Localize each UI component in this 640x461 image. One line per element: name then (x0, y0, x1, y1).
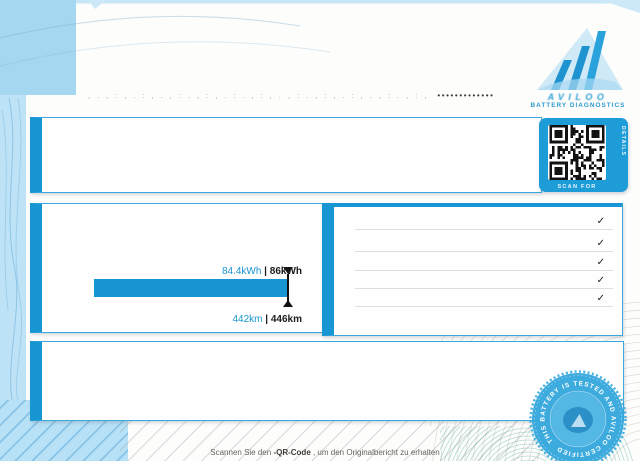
checklist-row: ✓ (355, 306, 613, 307)
qr-scan-for-label: SCAN FOR (539, 184, 615, 190)
checkmark-icon: ✓ (597, 257, 605, 268)
capacity-labels: 84.4kWh | 86kWh (42, 255, 302, 288)
checklist-row: ✓ (355, 288, 613, 289)
aviloo-logo: AVILOO BATTERY DIAGNOSTICS (527, 16, 629, 109)
qr-code-pattern (548, 125, 606, 180)
certificate-page: , . , : , . : , . , : . , : , . : . , : … (0, 0, 640, 461)
checkmark-icon: ✓ (597, 216, 605, 227)
range-labels: 442km | 446km (42, 303, 302, 336)
masked-dots: ••••••••••••• (437, 91, 494, 100)
capacity-measured: 84.4kWh (222, 266, 261, 277)
capacity-chart-box: 84.4kWh | 86kWh 442km | 446km (30, 203, 329, 333)
footer-scan-instruction: Scannen Sie den -QR-Code , um den Origin… (140, 448, 510, 457)
range-separator: | (263, 314, 271, 325)
checklist-row: ✓ (355, 251, 613, 252)
range-original: 446km (271, 314, 302, 325)
checkmark-icon: ✓ (597, 275, 605, 286)
footer-prefix: Scannen Sie den (210, 448, 273, 457)
checklist-row: ✓ (355, 270, 613, 271)
checklist-box: ✓ ✓ ✓ ✓ ✓ (322, 203, 623, 336)
qr-code (548, 125, 606, 180)
qr-details-label: DETAILS (620, 126, 626, 156)
checklist-row: ✓ (355, 229, 613, 230)
range-measured: 442km (232, 314, 262, 325)
logo-wordmark: AVILOO (527, 92, 629, 102)
capacity-separator: | (261, 266, 269, 277)
checkmark-icon: ✓ (597, 238, 605, 249)
redacted-header-line: , . , : , . : , . , : . , : , . : . , : … (88, 85, 495, 103)
capacity-original: 86kWh (270, 266, 302, 277)
footer-suffix: , um den Originalbericht zu erhalten (311, 448, 440, 457)
redacted-text: , . , : , . : , . , : . , : , . : . , : … (88, 93, 429, 100)
vehicle-info-box (30, 117, 542, 193)
logo-triangle-icon (527, 16, 629, 96)
qr-block: SCAN FOR DETAILS (539, 118, 628, 192)
checkmark-icon: ✓ (597, 293, 605, 304)
footer-qr-code-bold: -QR-Code (273, 448, 310, 457)
certification-seal: THIS BATTERY IS TESTED AND AVILOO CERTIF… (528, 369, 628, 461)
logo-tagline: BATTERY DIAGNOSTICS (527, 102, 629, 109)
